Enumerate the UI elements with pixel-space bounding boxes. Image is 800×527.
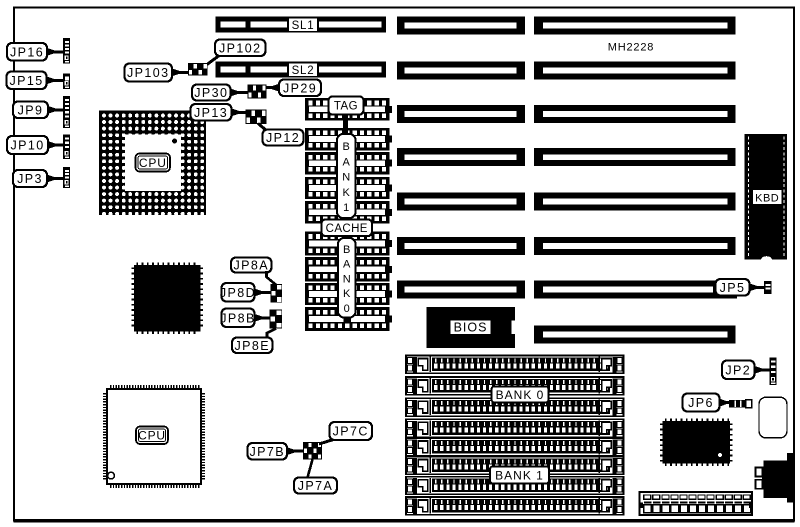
svg-text:JP30: JP30	[194, 86, 228, 100]
svg-text:BANK 0: BANK 0	[496, 388, 545, 402]
svg-text:CPU: CPU	[139, 156, 167, 170]
svg-text:JP7A: JP7A	[298, 479, 333, 493]
svg-text:CPU: CPU	[138, 429, 166, 443]
svg-text:SL1: SL1	[292, 20, 315, 32]
svg-text:TAG: TAG	[334, 101, 358, 113]
svg-text:JP8B: JP8B	[220, 311, 255, 325]
svg-text:KBD: KBD	[755, 192, 779, 204]
svg-text:K: K	[343, 187, 351, 199]
svg-text:JP6: JP6	[688, 396, 714, 410]
svg-text:JP102: JP102	[219, 41, 261, 55]
svg-text:JP103: JP103	[127, 66, 169, 80]
svg-text:JP16: JP16	[10, 45, 44, 59]
svg-text:JP15: JP15	[9, 74, 43, 88]
svg-text:JP9: JP9	[18, 103, 44, 117]
svg-text:JP8A: JP8A	[234, 259, 269, 273]
svg-text:JP10: JP10	[10, 139, 44, 153]
svg-text:JP8E: JP8E	[235, 339, 270, 353]
svg-text:K: K	[343, 288, 351, 300]
svg-text:JP13: JP13	[194, 106, 228, 120]
svg-text:BIOS: BIOS	[454, 321, 488, 335]
svg-text:N: N	[343, 273, 351, 285]
svg-text:B: B	[343, 141, 350, 153]
svg-text:1: 1	[343, 202, 349, 214]
svg-text:JP2: JP2	[725, 363, 751, 377]
svg-text:JP7C: JP7C	[333, 425, 369, 439]
svg-text:JP29: JP29	[283, 81, 317, 95]
svg-text:BANK 1: BANK 1	[495, 469, 544, 483]
svg-text:B: B	[343, 244, 350, 256]
svg-text:JP3: JP3	[17, 172, 43, 186]
svg-text:A: A	[343, 259, 351, 271]
svg-text:N: N	[342, 172, 350, 184]
svg-text:JP12: JP12	[266, 131, 300, 145]
svg-text:A: A	[343, 156, 351, 168]
svg-text:0: 0	[344, 303, 350, 315]
svg-text:CACHE: CACHE	[326, 223, 368, 235]
svg-text:MH2228: MH2228	[608, 42, 654, 54]
svg-text:SL2: SL2	[292, 65, 315, 77]
svg-text:JP7B: JP7B	[250, 445, 285, 459]
svg-text:JP8D: JP8D	[220, 286, 256, 300]
svg-text:JP5: JP5	[720, 281, 746, 295]
